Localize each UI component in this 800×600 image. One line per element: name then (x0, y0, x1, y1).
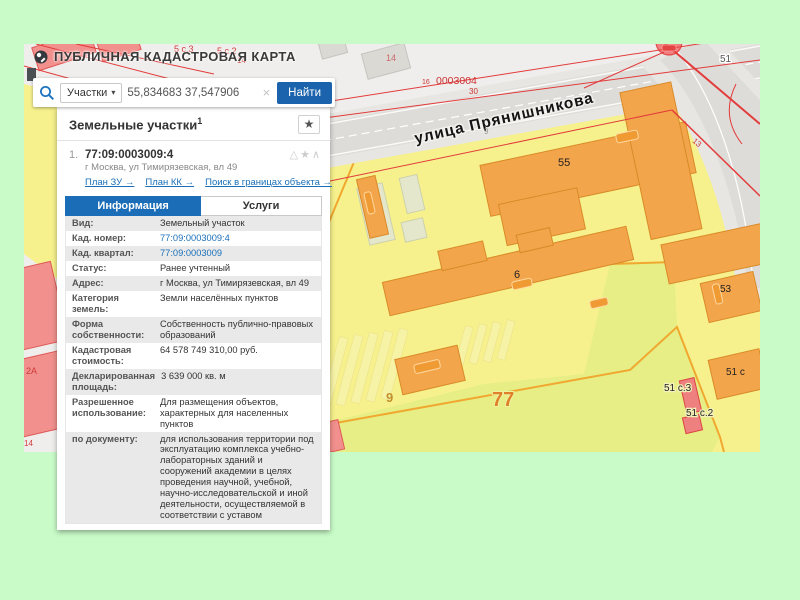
map-label-9road: 9 (484, 127, 489, 136)
item-index: 1. (69, 149, 85, 161)
rosreestr-logo-icon (34, 50, 48, 64)
table-row-status: Статус: Ранее учтенный (66, 261, 321, 276)
app-title: ПУБЛИЧНАЯ КАДАСТРОВАЯ КАРТА (54, 49, 296, 64)
search-bar: Участки ▾ × Найти (33, 78, 335, 107)
row-label: по документу: (66, 432, 158, 524)
search-category-dropdown[interactable]: Участки ▾ (60, 83, 122, 103)
building-badge-red (662, 45, 676, 51)
results-count: 1 (197, 116, 202, 126)
map-label-6: 6 (514, 269, 520, 281)
table-row-kad-nomer: Кад. номер: 77:09:0003009:4 (66, 231, 321, 246)
row-value: для использования территории под эксплуа… (158, 432, 321, 524)
map-label-55: 55 (558, 157, 570, 169)
map-label-51s3: 51 с.3 (664, 383, 692, 394)
table-row-address: Адрес: г Москва, ул Тимирязевская, вл 49 (66, 276, 321, 291)
row-value-link[interactable]: 77:09:0003009 (158, 246, 321, 261)
map-label-14c: 14 (24, 439, 33, 448)
table-row-by-document: по документу: для использования территор… (66, 432, 321, 524)
map-label-9: 9 (386, 390, 393, 405)
map-label-2a: 2А (26, 366, 37, 376)
row-label: Кадастровая стоимость: (66, 343, 158, 369)
map-label-51s: 51 с (726, 367, 745, 378)
star-icon: ★ (304, 117, 315, 131)
row-label: Категория земель: (66, 291, 158, 317)
row-label: Вид: (66, 216, 158, 231)
item-cadastral-number[interactable]: 77:09:0003009:4 (85, 149, 290, 161)
results-title: Земельные участки1 (69, 116, 202, 132)
row-value: Земли населённых пунктов (158, 291, 321, 317)
search-icon[interactable] (39, 85, 55, 101)
map-label-51s2: 51 с.2 (686, 408, 714, 419)
map-label-14b: 14 (386, 53, 396, 63)
detail-tabs: Информация Услуги (65, 196, 322, 216)
list-item[interactable]: 1. 77:09:0003009:4 △★∧ г Москва, ул Тими… (57, 141, 330, 190)
item-address: г Москва, ул Тимирязевская, вл 49 (85, 161, 322, 173)
row-label: Форма собственности: (66, 317, 158, 343)
table-row-kad-kvartal: Кад. квартал: 77:09:0003009 (66, 246, 321, 261)
table-row-area: Декларированная площадь: 3 639 000 кв. м (66, 369, 321, 395)
table-row-cost: Кадастровая стоимость: 64 578 749 310,00… (66, 343, 321, 369)
map-label-53: 53 (720, 284, 732, 295)
tab-services[interactable]: Услуги (201, 196, 322, 216)
row-label: Кад. номер: (66, 231, 158, 246)
search-category-label: Участки (67, 87, 107, 99)
find-button[interactable]: Найти (277, 82, 332, 104)
item-action-icons[interactable]: △★∧ (290, 148, 322, 161)
item-links: План ЗУ → План КК → Поиск в границах объ… (85, 173, 322, 188)
map-label-30: 30 (469, 87, 478, 96)
row-label: Статус: (66, 261, 158, 276)
results-panel: Земельные участки1 ★ 1. 77:09:0003009:4 … (57, 107, 330, 530)
search-input[interactable] (127, 87, 255, 99)
chevron-down-icon: ▾ (111, 88, 115, 97)
map-label-16: 16 (422, 79, 430, 86)
row-label: Разрешенное использование: (66, 395, 158, 432)
row-value: 64 578 749 310,00 руб. (158, 343, 321, 369)
results-header: Земельные участки1 ★ (57, 107, 330, 141)
row-value-link[interactable]: 77:09:0003009:4 (158, 231, 321, 246)
table-row-permitted-use: Разрешенное использование: Для размещени… (66, 395, 321, 432)
row-value: Собственность публично-правовых образова… (158, 317, 321, 343)
clear-search-icon[interactable]: × (261, 85, 273, 100)
row-label: Декларированная площадь: (66, 369, 159, 395)
map-label-51: 51 (720, 54, 732, 65)
app-header: ПУБЛИЧНАЯ КАДАСТРОВАЯ КАРТА (34, 49, 296, 64)
row-value: Ранее учтенный (158, 261, 321, 276)
row-value: г Москва, ул Тимирязевская, вл 49 (158, 276, 321, 291)
table-row-ownership: Форма собственности: Собственность публи… (66, 317, 321, 343)
map-label-77: 77 (492, 389, 514, 411)
map-label-quarter: 0003004 (436, 75, 477, 87)
table-row-category: Категория земель: Земли населённых пункт… (66, 291, 321, 317)
plan-kk-link[interactable]: План КК → (145, 177, 194, 188)
row-value: 3 639 000 кв. м (159, 369, 321, 395)
plan-zu-link[interactable]: План ЗУ → (85, 177, 134, 188)
results-title-text: Земельные участки (69, 118, 197, 133)
tab-information[interactable]: Информация (65, 196, 201, 216)
search-in-bounds-link[interactable]: Поиск в границах объекта → (205, 177, 332, 188)
row-label: Кад. квартал: (66, 246, 158, 261)
table-row-vid: Вид: Земельный участок (66, 216, 321, 231)
favorites-button[interactable]: ★ (298, 115, 320, 134)
row-value: Для размещения объектов, характерных для… (158, 395, 321, 432)
row-label: Адрес: (66, 276, 158, 291)
info-table: Вид: Земельный участок Кад. номер: 77:09… (65, 216, 322, 524)
row-value: Земельный участок (158, 216, 321, 231)
page: улица Прянишникова 5 с.3 5 с.2 14 14 16 … (0, 0, 800, 600)
